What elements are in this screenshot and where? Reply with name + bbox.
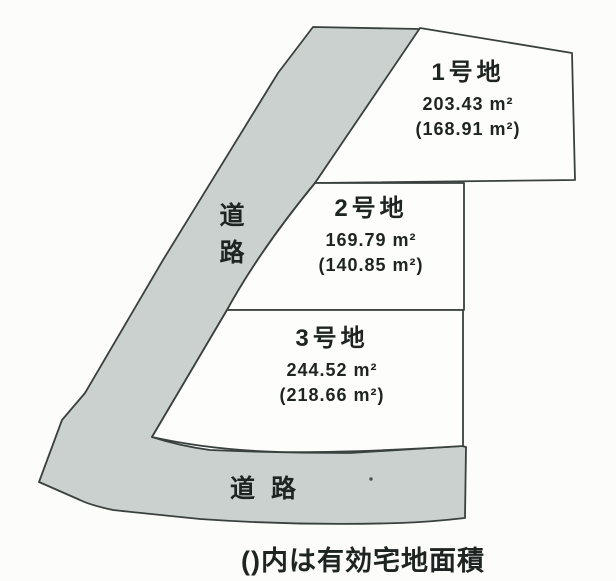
lot-2-label-block: 2号地 169.79 m² (140.85 m²) [261, 196, 481, 275]
lot-3-label-block: 3号地 244.52 m² (218.66 m²) [222, 326, 442, 405]
lot-3-label: 3号地 [222, 326, 442, 352]
road-label-left: 道路 [212, 202, 248, 276]
lot-1-label: 1号地 [358, 60, 578, 86]
caption: ()内は有効宅地面積 [241, 539, 485, 578]
lot-3-effective-area-value: (218.66 m²) [222, 385, 442, 405]
lot-1-effective-area-value: (168.91 m²) [358, 119, 578, 139]
lot-1-area-value: 203.43 m² [358, 94, 578, 114]
land-plot-diagram: 1号地 203.43 m² (168.91 m²) 2号地 169.79 m² … [0, 0, 616, 581]
lot-2-label: 2号地 [261, 196, 481, 222]
lot-2-effective-area-value: (140.85 m²) [261, 255, 481, 275]
scan-speck [369, 477, 372, 480]
lot-2-area-value: 169.79 m² [261, 230, 481, 250]
lot-1-label-block: 1号地 203.43 m² (168.91 m²) [358, 60, 578, 139]
lot-3-area-value: 244.52 m² [222, 360, 442, 380]
road-label-bottom: 道路 [230, 469, 312, 505]
